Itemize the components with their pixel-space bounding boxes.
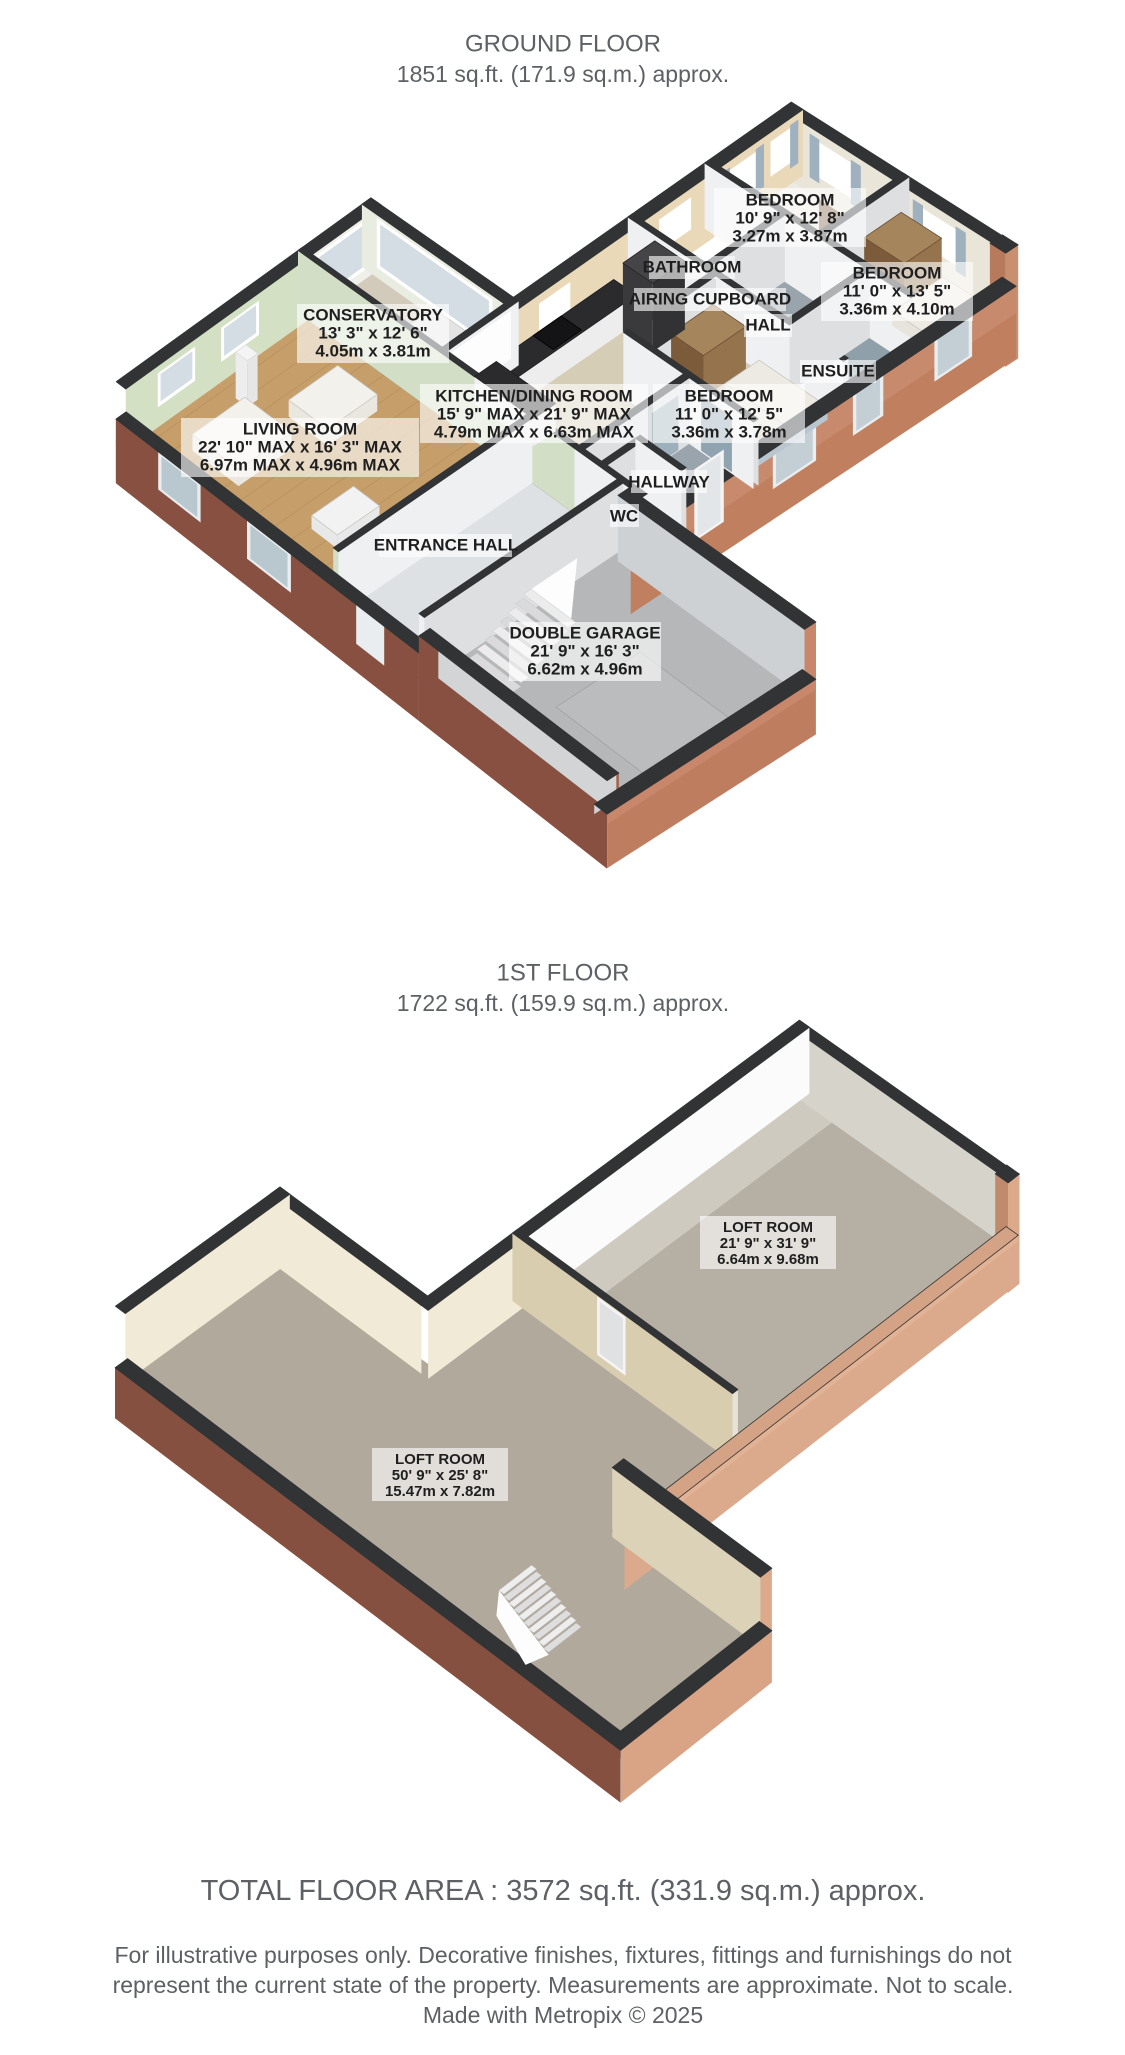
svg-text:6.62m x 4.96m: 6.62m x 4.96m [527,659,642,678]
svg-text:GROUND FLOOR: GROUND FLOOR [465,31,661,58]
svg-text:LIVING ROOM: LIVING ROOM [243,419,357,438]
svg-text:CONSERVATORY: CONSERVATORY [303,305,443,324]
svg-text:KITCHEN/DINING ROOM: KITCHEN/DINING ROOM [435,386,632,405]
svg-text:For illustrative purposes only: For illustrative purposes only. Decorati… [115,1942,1013,1968]
svg-text:11' 0" x 13' 5": 11' 0" x 13' 5" [843,281,951,300]
svg-text:TOTAL FLOOR AREA : 3572 sq.ft.: TOTAL FLOOR AREA : 3572 sq.ft. (331.9 sq… [201,1875,926,1907]
svg-text:HALL: HALL [745,315,790,334]
svg-text:1722 sq.ft. (159.9 sq.m.) appr: 1722 sq.ft. (159.9 sq.m.) approx. [397,990,729,1016]
svg-text:3.36m x 4.10m: 3.36m x 4.10m [839,299,954,318]
svg-text:4.05m x 3.81m: 4.05m x 3.81m [315,341,430,360]
svg-text:BEDROOM: BEDROOM [853,263,942,282]
svg-text:LOFT ROOM: LOFT ROOM [723,1219,813,1236]
svg-text:10' 9" x 12' 8": 10' 9" x 12' 8" [735,208,844,227]
svg-text:ENSUITE: ENSUITE [801,361,875,380]
svg-text:represent the current state of: represent the current state of the prope… [113,1972,1014,1998]
svg-text:15' 9" MAX x 21' 9" MAX: 15' 9" MAX x 21' 9" MAX [437,404,632,423]
svg-text:6.97m MAX x 4.96m MAX: 6.97m MAX x 4.96m MAX [200,455,401,474]
svg-text:4.79m MAX x 6.63m MAX: 4.79m MAX x 6.63m MAX [434,422,635,441]
svg-text:6.64m x 9.68m: 6.64m x 9.68m [717,1251,819,1268]
svg-text:3.27m x 3.87m: 3.27m x 3.87m [732,226,847,245]
svg-text:BEDROOM: BEDROOM [685,386,774,405]
svg-text:AIRING CUPBOARD: AIRING CUPBOARD [629,289,791,308]
svg-text:BEDROOM: BEDROOM [746,190,835,209]
svg-text:DOUBLE GARAGE: DOUBLE GARAGE [509,623,660,642]
svg-text:WC: WC [610,506,638,525]
svg-text:1851 sq.ft. (171.9 sq.m.) appr: 1851 sq.ft. (171.9 sq.m.) approx. [397,61,729,87]
svg-text:Made with Metropix © 2025: Made with Metropix © 2025 [423,2002,703,2028]
svg-text:21' 9" x 16' 3": 21' 9" x 16' 3" [530,641,639,660]
svg-text:21' 9" x 31' 9": 21' 9" x 31' 9" [720,1235,816,1252]
svg-text:LOFT ROOM: LOFT ROOM [395,1451,485,1468]
svg-text:13' 3" x 12' 6": 13' 3" x 12' 6" [318,323,427,342]
svg-text:HALLWAY: HALLWAY [628,472,710,491]
svg-text:15.47m x 7.82m: 15.47m x 7.82m [385,1483,495,1500]
svg-text:1ST FLOOR: 1ST FLOOR [497,960,630,987]
svg-text:22' 10" MAX x 16' 3" MAX: 22' 10" MAX x 16' 3" MAX [198,437,402,456]
svg-text:BATHROOM: BATHROOM [643,257,742,276]
svg-text:11' 0" x 12' 5": 11' 0" x 12' 5" [675,404,783,423]
svg-text:3.36m x 3.78m: 3.36m x 3.78m [671,422,786,441]
svg-text:50' 9" x 25' 8": 50' 9" x 25' 8" [392,1467,488,1484]
svg-text:ENTRANCE HALL: ENTRANCE HALL [374,535,519,554]
